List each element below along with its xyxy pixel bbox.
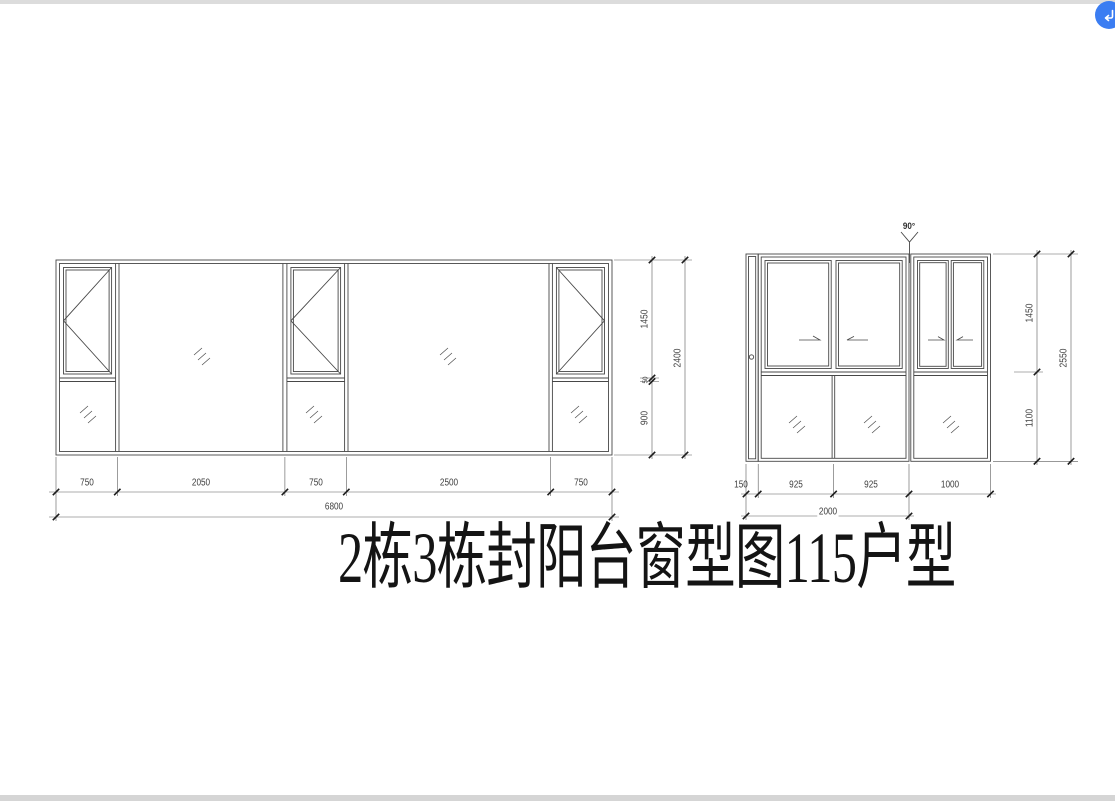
right-side-total: 2550	[1059, 348, 1070, 367]
cad-linework	[0, 0, 1115, 801]
right-bottom-dim-2: 925	[864, 480, 878, 491]
left-bottom-dim-1: 2050	[192, 478, 210, 489]
right-bottom-total: 2000	[817, 507, 839, 518]
left-side-dim-1: 50	[641, 376, 650, 383]
right-side-dim-0: 1450	[1025, 304, 1036, 323]
left-bottom-dim-4: 750	[575, 478, 589, 489]
left-side-total: 2400	[673, 348, 684, 367]
right-side-dim-1: 1100	[1025, 409, 1036, 427]
right-bottom-dim-0: 150	[734, 480, 748, 491]
left-bottom-total: 6800	[325, 502, 343, 513]
return-arrow-icon	[1101, 7, 1115, 23]
drawing-title: 2栋3栋封阳台窗型图115户型	[338, 520, 956, 596]
left-side-dim-0: 1450	[640, 310, 651, 329]
right-bottom-dim-1: 925	[789, 480, 803, 491]
right-bottom-dim-3: 1000	[941, 480, 959, 491]
left-bottom-dim-2: 750	[309, 478, 323, 489]
floating-action-button[interactable]	[1095, 1, 1115, 29]
cad-viewer-page: { "drawing": { "title": "2栋3栋封阳台窗型图115户型…	[0, 0, 1115, 801]
left-side-dim-2: 900	[640, 411, 651, 425]
left-bottom-dim-3: 2500	[439, 478, 457, 489]
corner-angle-label: 90°	[903, 221, 915, 231]
left-bottom-dim-0: 750	[80, 478, 94, 489]
